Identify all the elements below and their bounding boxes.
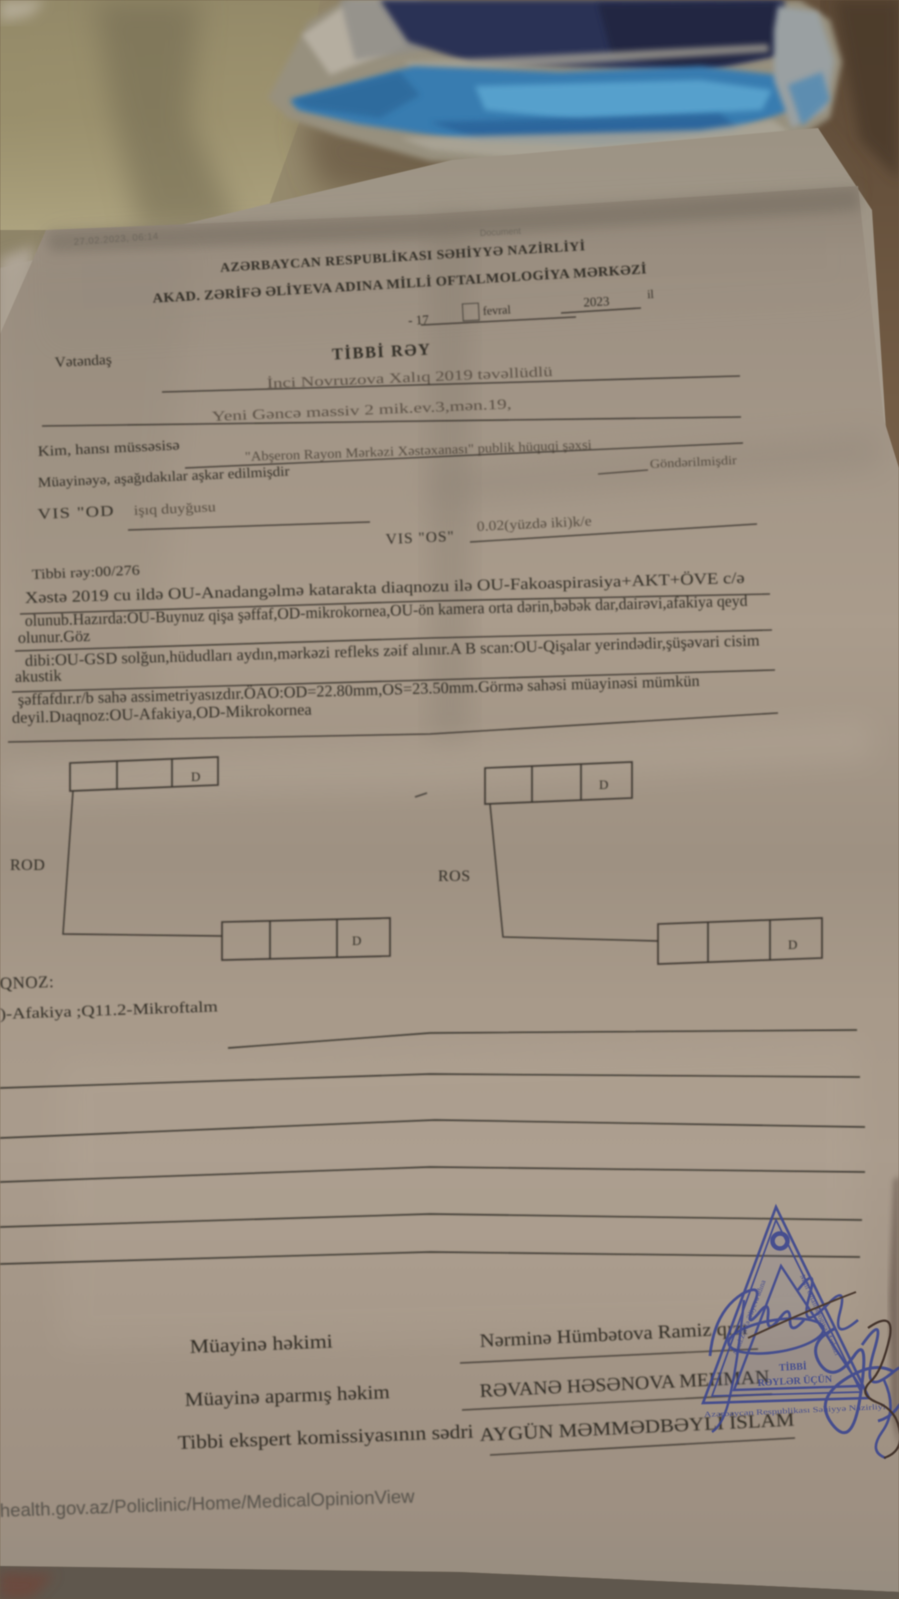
svg-text:- 17: - 17 <box>408 312 430 328</box>
svg-text:akustik: akustik <box>15 667 63 686</box>
svg-text:TİBBİ: TİBBİ <box>779 1360 807 1373</box>
svg-text:D: D <box>191 769 200 784</box>
svg-text:D: D <box>352 933 361 948</box>
svg-text:VIS "OS": VIS "OS" <box>385 529 455 548</box>
svg-text:QNOZ:: QNOZ: <box>0 972 55 993</box>
svg-text:D: D <box>599 777 608 792</box>
svg-text:Vətəndaş: Vətəndaş <box>54 352 112 371</box>
svg-text:ROS: ROS <box>438 868 471 885</box>
svg-text:fevral: fevral <box>482 302 511 317</box>
svg-text:olunur.Göz: olunur.Göz <box>18 627 91 647</box>
svg-text:2023: 2023 <box>583 293 610 309</box>
svg-text:ROD: ROD <box>10 857 45 874</box>
svg-text:D: D <box>788 937 797 952</box>
